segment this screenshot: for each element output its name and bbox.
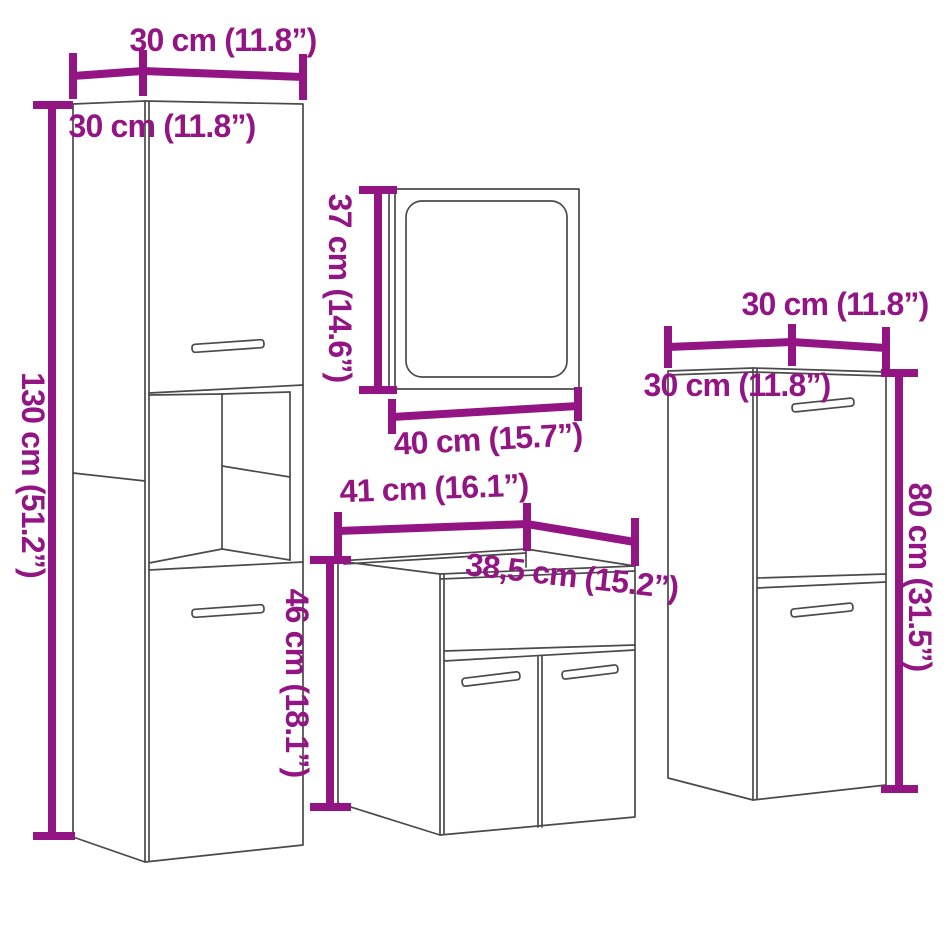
- tall-cabinet-side-panel: [73, 101, 145, 862]
- diagram-canvas: 30 cm (11.8”) 30 cm (11.8”) 130 cm (51.2…: [0, 0, 947, 947]
- side-cabinet-side-panel: [668, 368, 753, 800]
- side-cabinet-lower-door-top: [757, 582, 886, 588]
- dimension-diagram: 30 cm (11.8”) 30 cm (11.8”) 130 cm (51.2…: [0, 0, 947, 947]
- sink-cabinet-height-label: 46 cm (18.1”): [279, 589, 315, 778]
- sink-cabinet-left-door-handle: [462, 671, 521, 686]
- sink-cabinet-width-label: 41 cm (16.1”): [339, 467, 529, 510]
- sink-cabinet-right-door-handle: [562, 665, 619, 680]
- sink-cabinet-height-dimension-line: [310, 560, 351, 807]
- side-cabinet-lower-door-handle: [791, 603, 853, 617]
- compartment-shelf-edge: [222, 466, 290, 477]
- mirror-height-label: 37 cm (14.6”): [322, 194, 358, 383]
- mirror-width-label: 40 cm (15.7”): [393, 416, 584, 462]
- side-cabinet-front-panel: [753, 368, 886, 800]
- sink-cabinet-doors-top: [444, 650, 635, 661]
- side-cabinet-height-label: 80 cm (31.5”): [902, 483, 938, 672]
- tall-cabinet-width-label: 30 cm (11.8”): [129, 22, 316, 58]
- mirror-frame: [389, 189, 579, 389]
- side-cabinet-width-depth-dimension-line: [668, 324, 886, 369]
- side-cabinet-drawing: [668, 368, 886, 800]
- sink-cabinet-apron-bottom: [444, 645, 635, 651]
- tall-cabinet-lower-door-top: [149, 562, 303, 570]
- mirror-glass: [406, 201, 567, 377]
- compartment-ceiling-edge: [149, 394, 222, 395]
- tall-cabinet-drawing: [73, 101, 303, 862]
- mirror-height-dimension-line: [359, 190, 397, 390]
- sink-cabinet-depth-label: 38,5 cm (15.2”): [464, 546, 681, 606]
- mirror-drawing: [389, 189, 579, 389]
- compartment-floor-back-edge: [222, 549, 290, 560]
- compartment-floor-left-edge: [149, 549, 222, 563]
- tall-cabinet-height-label: 130 cm (51.2”): [15, 372, 51, 578]
- side-cabinet-upper-door-bottom: [757, 574, 886, 578]
- tall-cabinet-lower-door-handle: [192, 604, 264, 617]
- compartment-back-top-edge: [222, 392, 290, 394]
- sink-cabinet-side-panel: [338, 561, 440, 835]
- tall-cabinet-depth-label: 30 cm (11.8”): [68, 108, 255, 144]
- side-cabinet-width-label: 30 cm (11.8”): [741, 286, 928, 322]
- tall-cabinet-side-division: [73, 473, 145, 481]
- tall-cabinet-upper-door-handle: [192, 339, 264, 352]
- side-cabinet-depth-label: 30 cm (11.8”): [643, 367, 830, 403]
